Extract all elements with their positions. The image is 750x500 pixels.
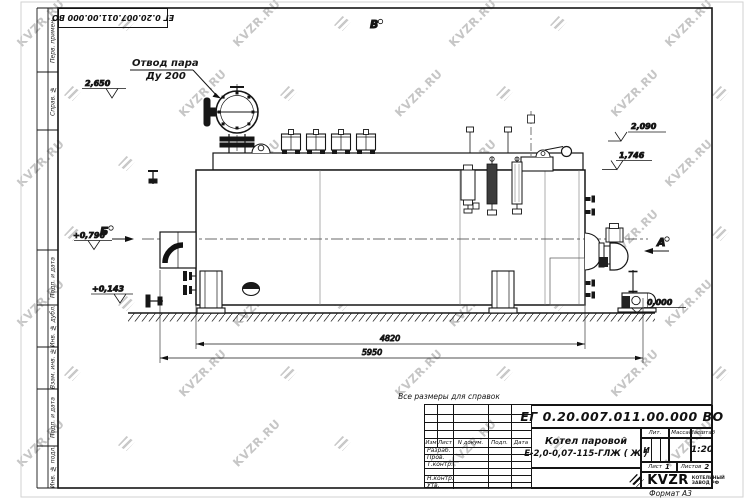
dim-body-length: 4820 [380, 334, 400, 343]
reversed-doc-number-stamp: ЕГ 0.20.007.011.00.000 ВО [58, 8, 168, 28]
view-b-left: Б [100, 225, 108, 238]
steam-valve [204, 84, 270, 153]
tb-row-razrab: Разраб. [425, 447, 453, 454]
steam-outlet-line1: Отвод пара [132, 58, 199, 69]
kvzr-logo-subtext: КОТЕЛЬНЫЙ ЗАВОД РФ [692, 476, 725, 486]
tb-line [425, 422, 531, 423]
tb-line [425, 468, 531, 469]
tb-col-ndoc: N докум. [453, 438, 488, 447]
tb-row-prov: Пров. [425, 454, 453, 461]
tb-lit-header: Лит. [641, 428, 669, 438]
reference-note: Все размеры для справок [398, 392, 500, 401]
tb-col-list: Лист [437, 438, 453, 447]
tb-row-tkontr: Т.контр. [425, 461, 453, 468]
level-2090: 2,090 [631, 122, 657, 131]
tb-col-izm: Изм [425, 438, 437, 447]
tb-line [425, 430, 531, 431]
tb-scale-value: 1:20 [691, 438, 713, 462]
title-block: Изм Лист N докум. Подп. Дата Разраб. Про… [424, 404, 712, 488]
tb-sheet-value: 1 [665, 463, 670, 471]
tb-col-data: Дата [511, 438, 531, 447]
tb-line [425, 414, 531, 415]
tb-logo-cell: KVZR КОТЕЛЬНЫЙ ЗАВОД РФ [641, 472, 713, 489]
product-name-line2: Е-2,0-0,07-115-ГЛЖ ( Ж ) [524, 448, 648, 460]
margin-label-inv-podl: Инв. № подл. [48, 446, 58, 488]
margin-label-inv-dubl: Инв. № дубл. [48, 305, 58, 347]
tb-massa-cell [669, 438, 691, 462]
tb-col-podp: Подп. [488, 438, 511, 447]
level-2650: 2,650 [85, 79, 111, 88]
margin-label-podp-data-1: Подп. и дата [48, 250, 58, 305]
tb-row-utv: Утв. [425, 482, 453, 489]
tb-massa-header: Масса [669, 428, 691, 438]
tb-sheets-cell: Листов 2 [677, 462, 713, 472]
left-wall-stubs [183, 271, 192, 295]
ground [128, 313, 655, 322]
steam-outlet-line2: Ду 200 [145, 71, 186, 82]
rear-burner [585, 196, 628, 299]
drawing-sheet: KVZR.RUKVZR.RUKVZR.RUKVZR.RUKVZR.RUKVZR.… [0, 0, 750, 500]
product-name-line1: Котел паровой [545, 436, 627, 448]
level-0143: +0,143 [92, 285, 124, 294]
steam-outlet-label: Отвод пара Ду 200 [130, 58, 221, 99]
tb-company-cell [531, 468, 641, 489]
margin-label-sprav-n: Справ. № [48, 72, 58, 130]
tb-sheets-label: Листов [681, 464, 702, 470]
platform-pins [467, 111, 535, 157]
dim-overall-length: 5950 [362, 348, 382, 357]
top-hatches [282, 130, 376, 154]
tb-sheet-cell: Лист 1 [641, 462, 677, 472]
tb-masshtab-header: Масштаб [691, 428, 713, 438]
view-a-right: А [656, 236, 666, 249]
tb-sheet-label: Лист [648, 464, 662, 470]
tb-row-nkontr: Н.контр. [425, 475, 453, 482]
margin-label-podp-data-2: Подп. и дата [48, 389, 58, 446]
boiler-body [196, 153, 585, 305]
tb-lit-cell: И [641, 438, 669, 462]
tb-sheets-value: 2 [704, 463, 709, 471]
level-0000: 0,000 [647, 298, 673, 307]
kvzr-logo-text: KVZR [647, 473, 689, 488]
margin-label-vzam-inv: Взам. инв. № [48, 347, 58, 389]
level-1746: 1,746 [619, 151, 645, 160]
view-v-top: В [370, 18, 378, 31]
format-label: Формат А3 [628, 488, 713, 499]
tb-doc-number: ЕГ 0.20.007.011.00.000 ВО [531, 405, 713, 428]
tb-product-name: Котел паровой Е-2,0-0,07-115-ГЛЖ ( Ж ) [531, 428, 641, 468]
tb-line [651, 439, 652, 461]
kvzr-sub-line2: ЗАВОД РФ [692, 481, 725, 486]
tb-line [660, 439, 661, 461]
